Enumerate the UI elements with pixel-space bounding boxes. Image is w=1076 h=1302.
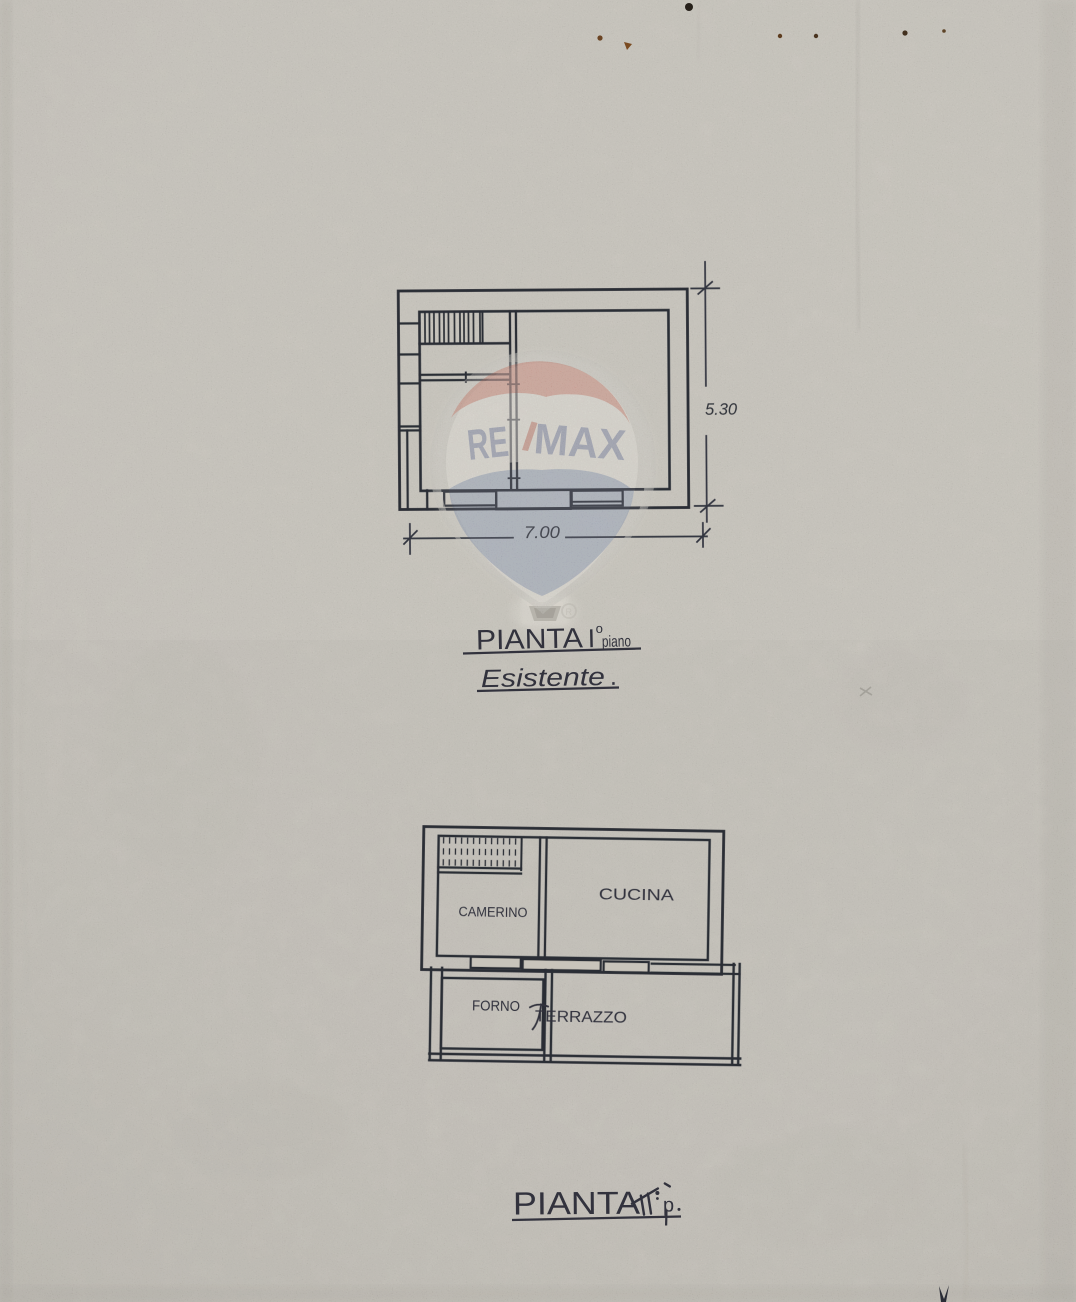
svg-text:FORNO: FORNO xyxy=(472,997,520,1015)
svg-text:7.00: 7.00 xyxy=(524,523,561,542)
svg-text:I: I xyxy=(588,623,596,653)
svg-text:R: R xyxy=(566,607,573,617)
svg-text:CUCINA: CUCINA xyxy=(599,886,675,904)
svg-text:CAMERINO: CAMERINO xyxy=(458,904,527,920)
svg-text:p: p xyxy=(663,1194,674,1216)
svg-text:5.30: 5.30 xyxy=(705,400,738,419)
svg-text:TERRAZZO: TERRAZZO xyxy=(535,1008,627,1026)
svg-text:PIANTA: PIANTA xyxy=(513,1185,641,1222)
